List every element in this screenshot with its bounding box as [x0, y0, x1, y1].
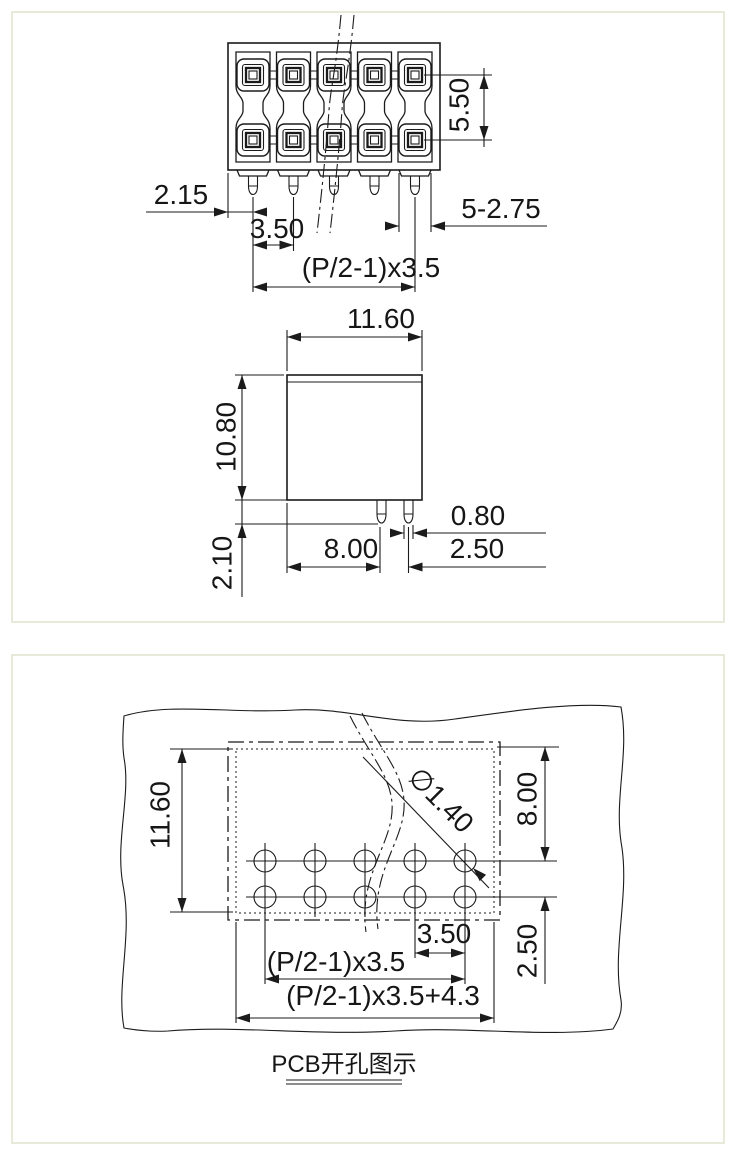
dim-outline-height: 11.60	[145, 749, 234, 912]
connector-views-svg: 5.50 2.15 3.50	[13, 13, 719, 617]
dim-label-hole-diameter: ∅1.40	[402, 761, 480, 839]
dim-label-8-00: 8.00	[512, 772, 543, 827]
dim-label-0-80: 0.80	[451, 500, 506, 531]
top-view-drawing: 5.50 2.15 3.50	[146, 15, 547, 292]
dim-label-8-00: 8.00	[324, 533, 379, 564]
dim-row-spacing: 5.50	[424, 68, 492, 147]
body-front-outline	[287, 375, 422, 500]
dim-label-2-50: 2.50	[512, 924, 543, 979]
front-view-drawing: 11.60 10.80 2.10	[207, 303, 547, 597]
connector-dimension-panel: 5.50 2.15 3.50	[11, 11, 725, 623]
caption-underline	[286, 1080, 402, 1084]
dim-top-to-row: 8.00	[497, 747, 559, 861]
dim-label-11-60: 11.60	[145, 781, 176, 849]
dim-label-2-15: 2.15	[154, 179, 209, 210]
dim-label-5-2-75: 5-2.75	[461, 193, 540, 224]
dim-hole-diameter: ∅1.40	[363, 757, 489, 888]
dim-label-total-formula: (P/2-1)x3.5+4.3	[286, 980, 480, 1011]
dim-label-2-50: 2.50	[450, 533, 505, 564]
drawing-sheet: 5.50 2.15 3.50	[0, 0, 736, 1154]
pcb-layout-svg: 11.60 8.00 2.50 ∅1.40	[13, 656, 719, 1138]
dim-label-pitch-formula: (P/2-1)x3.5	[267, 946, 406, 977]
solder-pins	[237, 170, 431, 195]
dim-row-gap: 2.50	[512, 897, 550, 984]
caption: PCB开孔图示	[271, 1051, 416, 1084]
dim-body-width: 11.60	[287, 303, 422, 371]
contacts-row-2	[237, 124, 431, 156]
dim-label-11-60: 11.60	[347, 303, 415, 334]
break-lines	[350, 713, 404, 932]
dim-label-3-50: 3.50	[250, 213, 305, 244]
dim-label-3-50: 3.50	[417, 918, 472, 949]
caption-text: PCB开孔图示	[271, 1051, 416, 1078]
dim-label-5-50: 5.50	[444, 78, 475, 133]
dim-label-pitch-formula: (P/2-1)x3.5	[302, 252, 441, 283]
dim-label-10-80: 10.80	[211, 402, 242, 472]
dim-tail-width: 5-2.75	[385, 173, 547, 232]
dim-label-2-10: 2.10	[207, 536, 238, 591]
dim-edge-to-pin-front: 8.00 2.50	[287, 503, 546, 573]
pcb-layout-panel: 11.60 8.00 2.50 ∅1.40	[11, 654, 725, 1144]
dim-body-height: 10.80	[211, 375, 285, 500]
dim-hole-pitch: 3.50	[415, 917, 471, 984]
hole-centerlines	[246, 843, 557, 917]
